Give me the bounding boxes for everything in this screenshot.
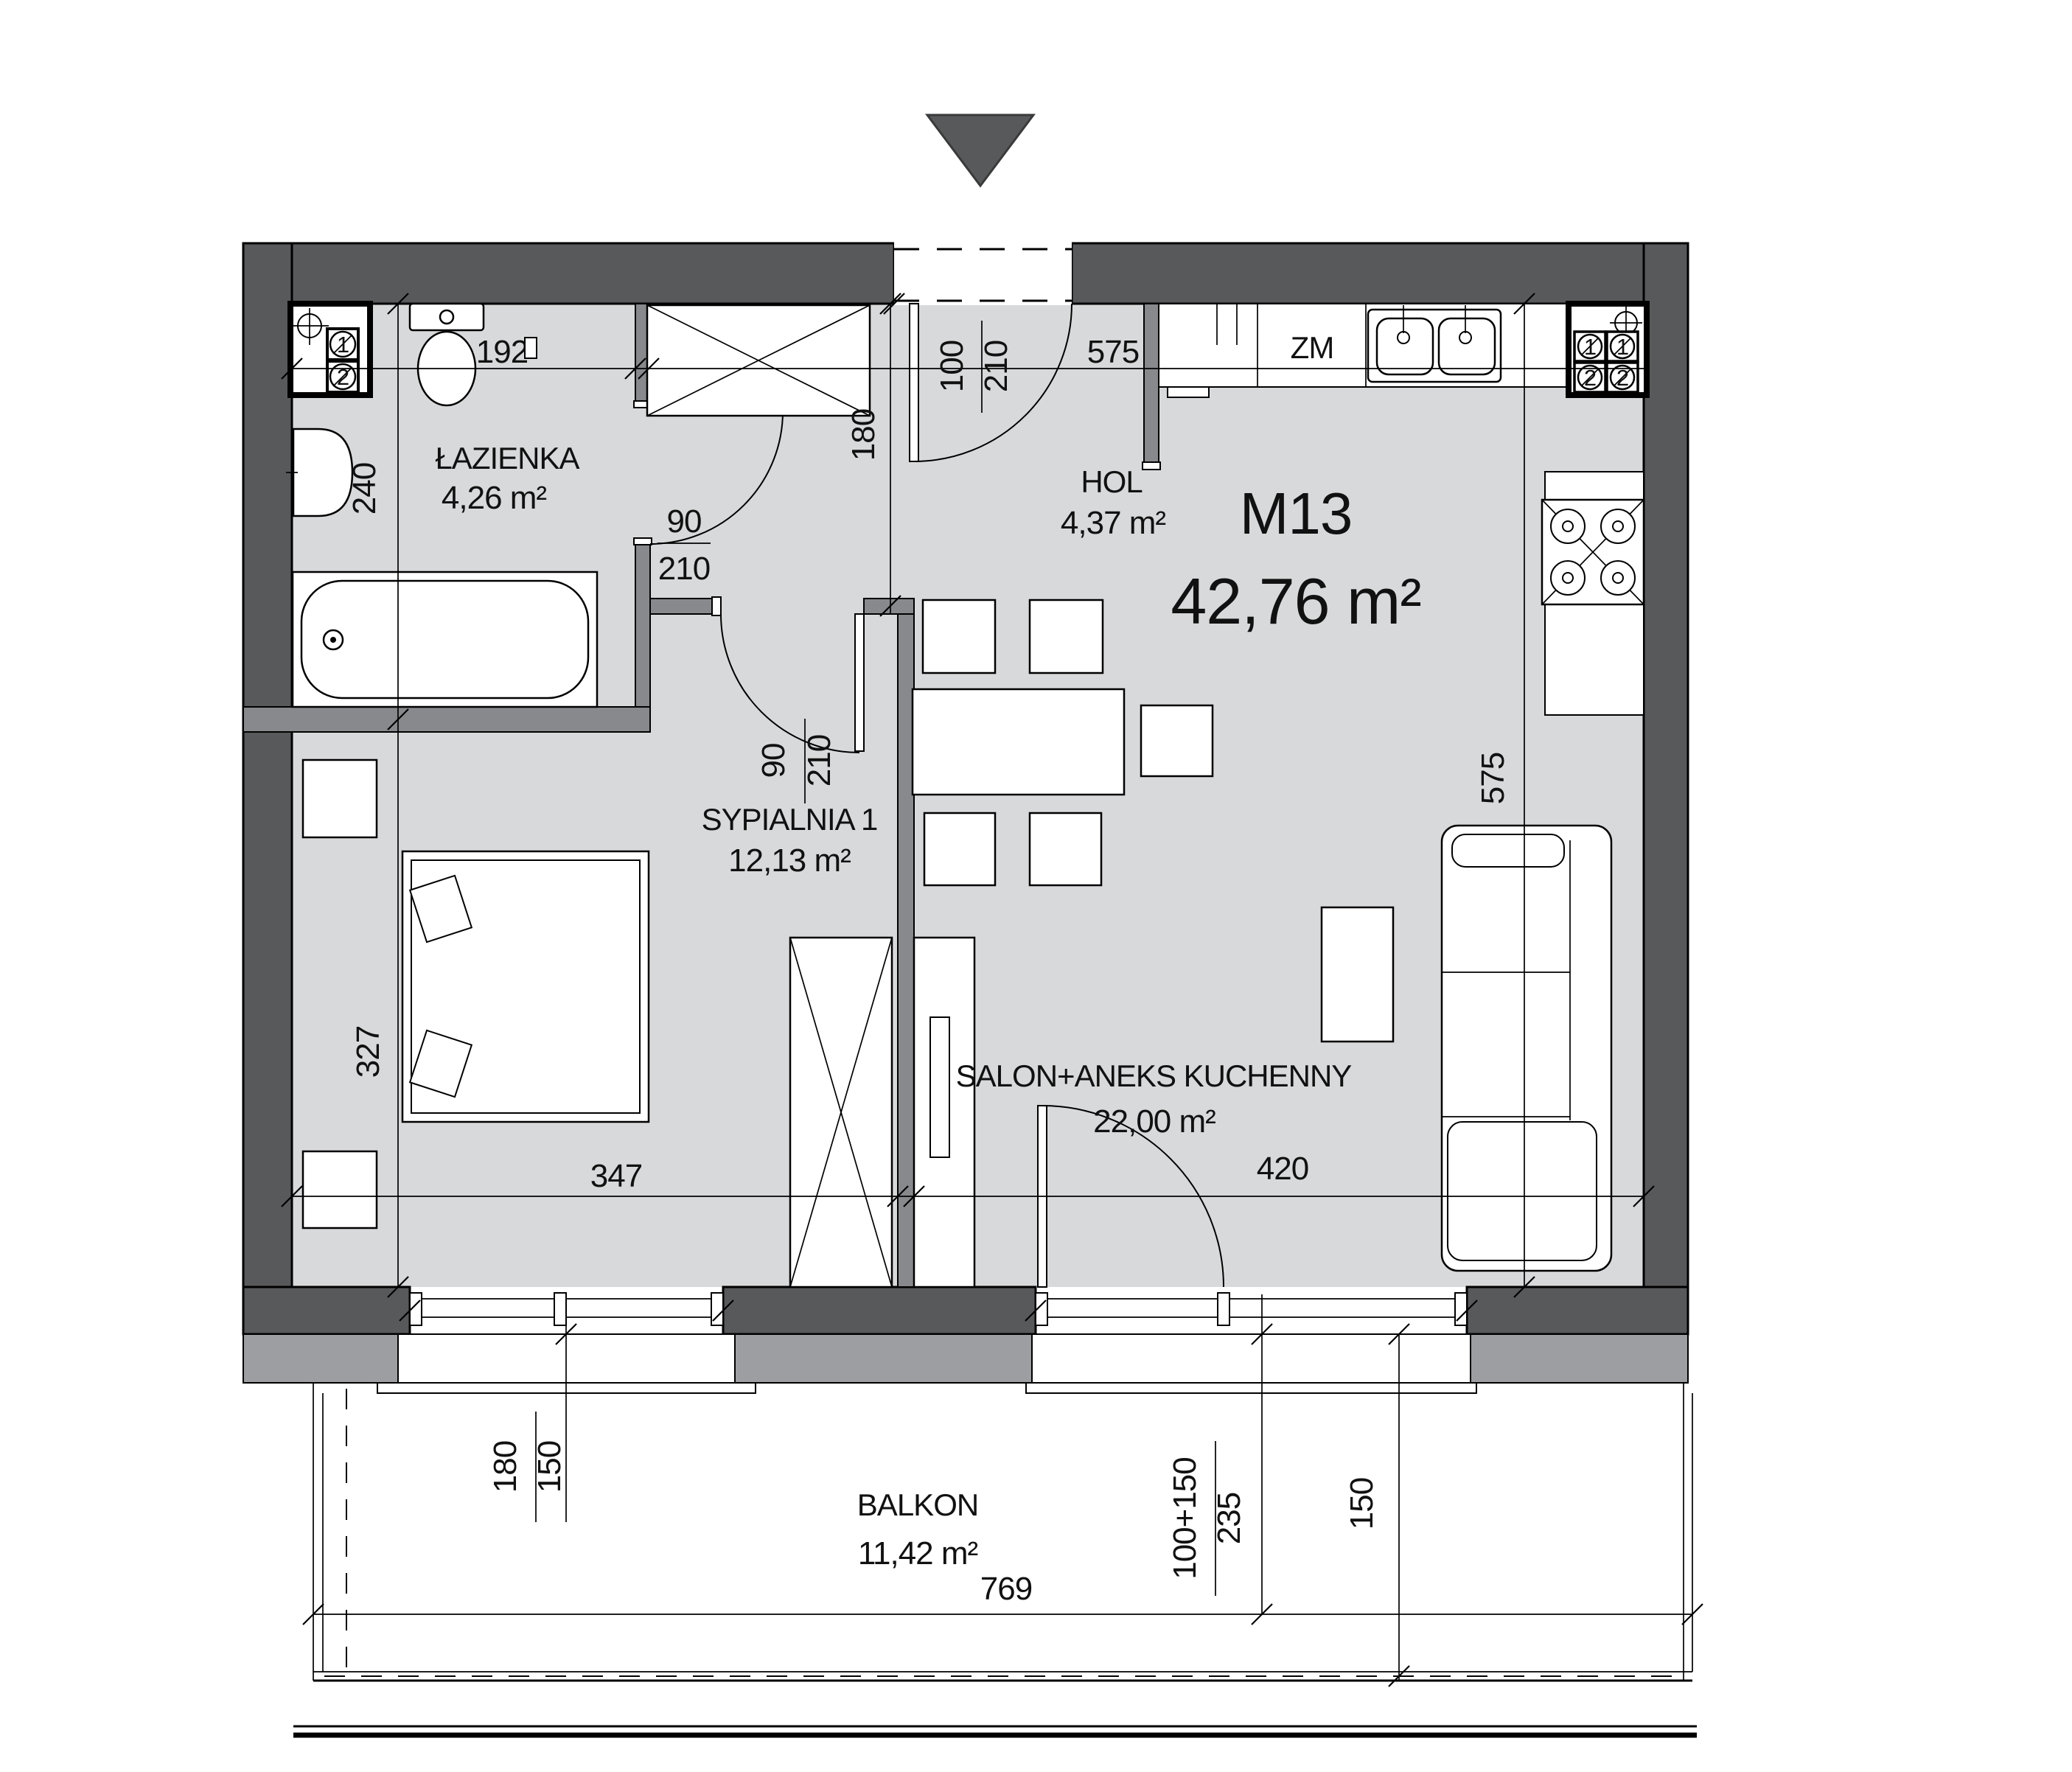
nightstand <box>303 1151 377 1228</box>
room-name-balcony: BALKON <box>857 1487 978 1522</box>
coffee-table <box>1322 907 1393 1042</box>
washbasin <box>286 429 352 516</box>
room-name-bedroom: SYPIALNIA 1 <box>702 802 878 837</box>
unit-total-area: 42,76 m² <box>1171 565 1420 638</box>
dim-bath-door-h: 210 <box>658 551 710 587</box>
balcony <box>293 1383 1697 1735</box>
dim-kitchen-run: 575 <box>1087 334 1139 370</box>
dim-entry-door-w: 100 <box>934 341 970 392</box>
vent-shaft-left: 1 2 <box>290 304 370 395</box>
stove <box>1542 500 1644 604</box>
dim-balcony-door-w: 100+150 <box>1167 1457 1203 1580</box>
room-area-living: 22,00 m² <box>1093 1103 1215 1140</box>
room-area-hall: 4,37 m² <box>1061 505 1166 541</box>
vent-shaft-right: 1 1 2 2 <box>1569 304 1647 395</box>
room-name-bathroom: ŁAZIENKA <box>435 441 579 475</box>
bed <box>402 851 649 1122</box>
flue-label: 1 <box>337 332 349 357</box>
tv <box>930 1017 949 1157</box>
chair <box>923 600 995 673</box>
dim-balcony-door-h: 235 <box>1211 1493 1247 1544</box>
room-area-bathroom: 4,26 m² <box>442 480 547 516</box>
chair <box>1030 600 1103 673</box>
bedroom-wardrobe <box>790 938 892 1287</box>
exterior-band <box>243 1334 1688 1393</box>
bathtub <box>293 572 597 707</box>
dim-balcony-depth: 150 <box>1344 1478 1380 1529</box>
room-area-balcony: 11,42 m² <box>858 1535 978 1572</box>
entry-opening <box>894 242 1072 305</box>
dim-bathroom-depth: 240 <box>346 463 383 514</box>
entrance-arrow-icon <box>927 115 1033 186</box>
balcony-door-sill <box>1032 1334 1471 1383</box>
room-name-hall: HOL <box>1081 464 1142 499</box>
floor-plan-svg: 1 2 <box>0 0 2072 1772</box>
hall-wardrobe <box>647 305 870 416</box>
dim-bedroom-width: 347 <box>590 1158 642 1194</box>
floor-plan: 1 2 <box>0 0 2072 1772</box>
dim-bedroom-door-w: 90 <box>756 744 792 778</box>
dim-bedroom-window-h: 150 <box>531 1441 568 1493</box>
kitchen-sink <box>1368 305 1501 382</box>
dim-living-width: 420 <box>1257 1151 1308 1187</box>
chair <box>924 813 995 885</box>
unit-number: M13 <box>1240 481 1353 546</box>
flue-label: 1 <box>1616 334 1628 360</box>
dim-bedroom-door-h: 210 <box>801 735 837 786</box>
room-area-bedroom: 12,13 m² <box>728 843 851 879</box>
dim-bedroom-depth: 327 <box>350 1026 386 1078</box>
dishwasher-label: ZM <box>1291 330 1334 365</box>
nightstand <box>303 760 377 837</box>
dim-hall-depth: 180 <box>845 409 882 461</box>
dim-living-depth: 575 <box>1475 753 1511 804</box>
flue-label: 1 <box>1584 334 1596 360</box>
dim-entry-door-h: 210 <box>978 341 1014 392</box>
dim-bathroom-width: 192 <box>476 334 528 370</box>
room-name-living: SALON+ANEKS KUCHENNY <box>956 1058 1353 1093</box>
chair <box>1141 705 1213 776</box>
tv-cabinet <box>914 938 974 1287</box>
dim-bath-door-w: 90 <box>667 503 702 540</box>
chair <box>1030 813 1101 885</box>
sofa <box>1442 826 1611 1271</box>
dim-balcony-width: 769 <box>980 1571 1032 1607</box>
dim-bedroom-window-w: 180 <box>487 1441 523 1493</box>
dining-table <box>913 689 1124 795</box>
